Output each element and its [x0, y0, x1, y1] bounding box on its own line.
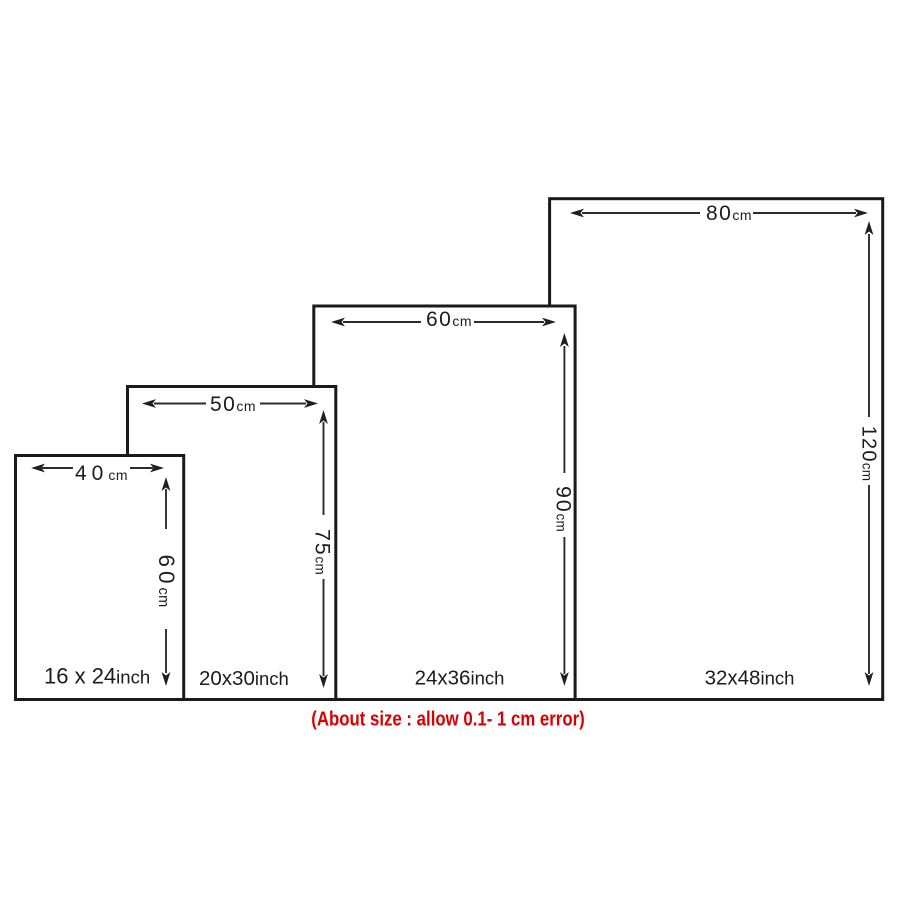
svg-text:24x36inch: 24x36inch	[415, 667, 505, 690]
svg-text:(About size : allow 0.1- 1 cm: (About size : allow 0.1- 1 cm error)	[311, 707, 585, 730]
svg-text:16 x 24inch: 16 x 24inch	[44, 664, 150, 689]
svg-text:20x30inch: 20x30inch	[199, 667, 289, 690]
svg-text:32x48inch: 32x48inch	[705, 667, 795, 690]
